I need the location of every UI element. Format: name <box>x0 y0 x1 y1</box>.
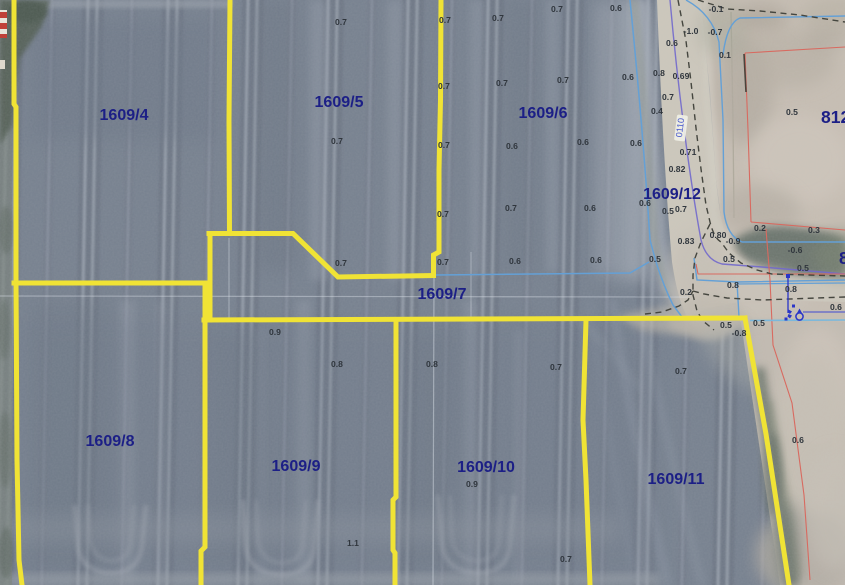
svg-text:1609/7: 1609/7 <box>418 286 467 303</box>
svg-text:-0.7: -0.7 <box>708 27 723 37</box>
svg-text:0.7: 0.7 <box>437 209 449 219</box>
svg-text:0.7: 0.7 <box>551 4 563 14</box>
svg-text:0.6: 0.6 <box>506 141 518 151</box>
svg-text:0.7: 0.7 <box>437 257 449 267</box>
svg-text:0.9: 0.9 <box>466 479 478 489</box>
svg-text:0.82: 0.82 <box>669 164 686 174</box>
svg-text:0.7: 0.7 <box>335 258 347 268</box>
svg-text:0.5: 0.5 <box>649 254 661 264</box>
svg-text:0.7: 0.7 <box>560 554 572 564</box>
svg-text:1609/12: 1609/12 <box>643 186 701 203</box>
svg-text:0.83: 0.83 <box>678 236 695 246</box>
svg-text:0.6: 0.6 <box>509 256 521 266</box>
svg-text:0.7: 0.7 <box>331 136 343 146</box>
svg-text:0.6: 0.6 <box>666 38 678 48</box>
svg-text:0.7: 0.7 <box>662 92 674 102</box>
svg-text:1609/4: 1609/4 <box>100 107 149 124</box>
svg-text:0.5: 0.5 <box>723 254 735 264</box>
svg-text:0.8: 0.8 <box>331 359 343 369</box>
svg-text:-0.8: -0.8 <box>732 328 747 338</box>
svg-text:0.7: 0.7 <box>550 362 562 372</box>
svg-text:0.8: 0.8 <box>426 359 438 369</box>
svg-text:1.1: 1.1 <box>347 538 359 548</box>
svg-text:0.5: 0.5 <box>797 263 809 273</box>
svg-text:0.5: 0.5 <box>720 320 732 330</box>
svg-text:0.6: 0.6 <box>577 137 589 147</box>
svg-text:0.7: 0.7 <box>492 13 504 23</box>
svg-text:0.8: 0.8 <box>727 280 739 290</box>
svg-text:0.7: 0.7 <box>438 81 450 91</box>
svg-text:0.6: 0.6 <box>792 435 804 445</box>
svg-text:0.8: 0.8 <box>785 284 797 294</box>
svg-text:0.7: 0.7 <box>557 75 569 85</box>
svg-text:-0.9: -0.9 <box>726 236 741 246</box>
svg-text:0.6: 0.6 <box>590 255 602 265</box>
svg-text:0.2: 0.2 <box>754 223 766 233</box>
svg-text:0.7: 0.7 <box>505 203 517 213</box>
svg-text:0.7: 0.7 <box>496 78 508 88</box>
svg-text:0.5: 0.5 <box>662 206 674 216</box>
svg-text:-0.6: -0.6 <box>788 245 803 255</box>
svg-text:-0.1: -0.1 <box>709 4 724 14</box>
svg-text:0.7: 0.7 <box>675 204 687 214</box>
svg-text:0.6: 0.6 <box>639 198 651 208</box>
svg-text:0.80: 0.80 <box>710 230 727 240</box>
svg-text:0.71: 0.71 <box>680 147 697 157</box>
svg-text:0.3: 0.3 <box>808 225 820 235</box>
svg-text:1609/10: 1609/10 <box>457 459 515 476</box>
svg-text:1609/6: 1609/6 <box>519 105 568 122</box>
svg-text:0.5: 0.5 <box>753 318 765 328</box>
svg-text:-1.0: -1.0 <box>684 26 699 36</box>
svg-text:0.6: 0.6 <box>630 138 642 148</box>
svg-text:0.7: 0.7 <box>675 366 687 376</box>
svg-text:812/: 812/ <box>821 107 845 127</box>
svg-text:0.6: 0.6 <box>610 3 622 13</box>
svg-text:1609/5: 1609/5 <box>315 94 364 111</box>
svg-text:0.7: 0.7 <box>438 140 450 150</box>
svg-text:0.6: 0.6 <box>584 203 596 213</box>
svg-text:0.69: 0.69 <box>673 71 690 81</box>
svg-text:0.6: 0.6 <box>830 302 842 312</box>
svg-text:0.7: 0.7 <box>439 15 451 25</box>
svg-text:0.5: 0.5 <box>786 107 798 117</box>
svg-text:0.1: 0.1 <box>719 50 731 60</box>
svg-text:0.4: 0.4 <box>651 106 663 116</box>
svg-text:0.7: 0.7 <box>335 17 347 27</box>
svg-text:0.9: 0.9 <box>269 327 281 337</box>
svg-text:1609/11: 1609/11 <box>648 471 705 488</box>
svg-text:0.8: 0.8 <box>653 68 665 78</box>
svg-text:1609/8: 1609/8 <box>86 433 135 450</box>
svg-text:8: 8 <box>839 248 845 268</box>
svg-text:0.2: 0.2 <box>680 287 692 297</box>
svg-text:1609/9: 1609/9 <box>272 458 321 475</box>
svg-text:0.6: 0.6 <box>622 72 634 82</box>
